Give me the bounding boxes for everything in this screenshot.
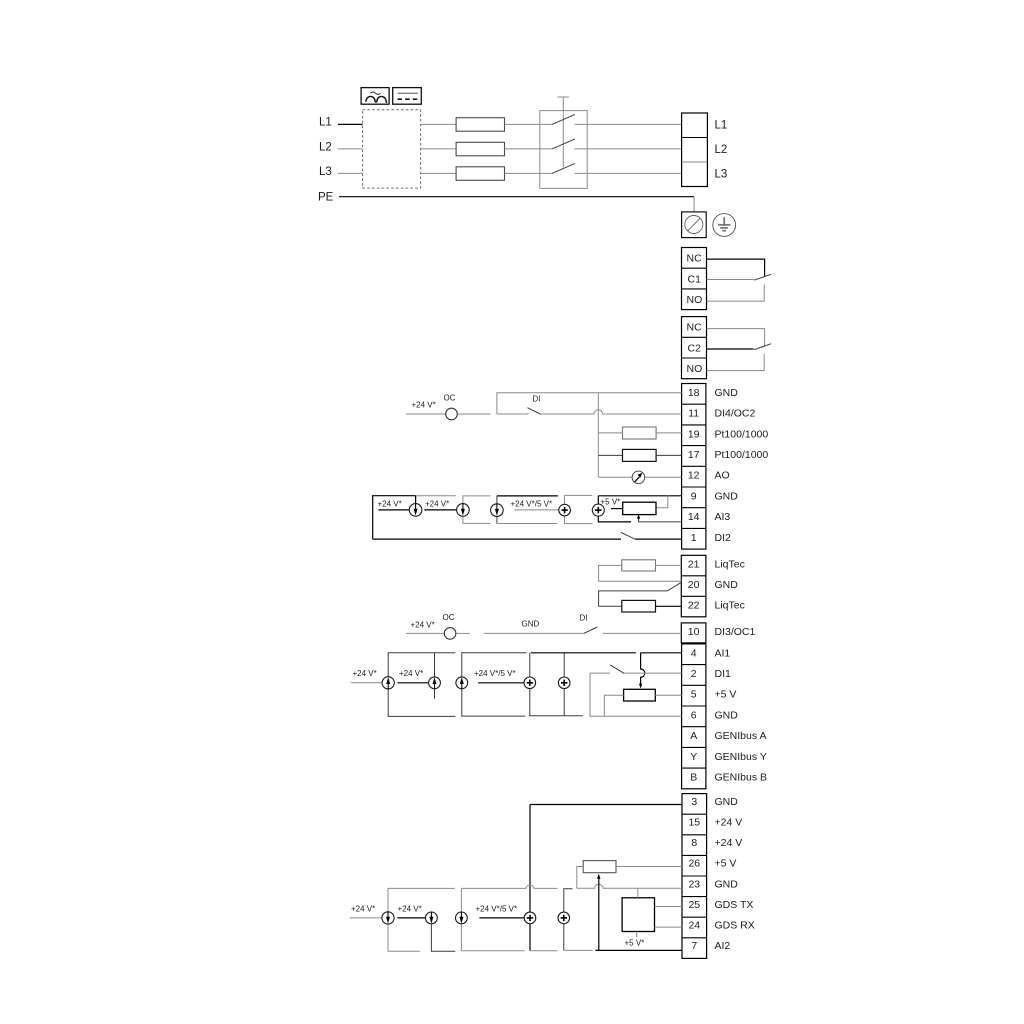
svg-text:L3: L3	[319, 166, 332, 178]
svg-text:11: 11	[688, 408, 699, 420]
svg-text:L1: L1	[715, 119, 728, 131]
svg-text:L1: L1	[319, 117, 332, 129]
svg-text:22: 22	[688, 600, 700, 612]
svg-text:17: 17	[688, 449, 700, 461]
svg-text:GND: GND	[715, 579, 739, 591]
svg-text:OC: OC	[444, 394, 456, 403]
svg-text:+24 V: +24 V	[715, 837, 743, 849]
svg-text:NC: NC	[687, 253, 703, 265]
svg-text:C1: C1	[688, 273, 702, 285]
svg-text:+24 V*/5 V*: +24 V*/5 V*	[511, 500, 553, 509]
svg-text:+5 V: +5 V	[715, 858, 737, 870]
svg-text:10: 10	[688, 626, 700, 638]
svg-text:A: A	[690, 730, 697, 742]
svg-text:GDS RX: GDS RX	[715, 920, 755, 932]
svg-text:GENIbus B: GENIbus B	[715, 772, 768, 784]
svg-text:LiqTec: LiqTec	[715, 559, 745, 571]
svg-text:9: 9	[691, 491, 697, 503]
svg-text:14: 14	[688, 511, 700, 523]
svg-text:8: 8	[691, 837, 697, 849]
svg-text:B: B	[690, 772, 697, 784]
svg-text:+24 V*: +24 V*	[425, 500, 449, 509]
svg-text:AI2: AI2	[715, 940, 731, 952]
svg-text:DI2: DI2	[715, 532, 732, 544]
svg-text:+5 V*: +5 V*	[625, 939, 645, 948]
svg-text:NO: NO	[687, 363, 703, 375]
svg-text:Pt100/1000: Pt100/1000	[715, 449, 769, 461]
svg-text:18: 18	[688, 387, 700, 399]
svg-text:21: 21	[688, 559, 700, 571]
svg-text:PE: PE	[318, 192, 334, 204]
svg-text:+24 V*: +24 V*	[353, 669, 377, 678]
svg-text:GND: GND	[715, 709, 739, 721]
svg-text:AI3: AI3	[715, 511, 731, 523]
svg-text:OC: OC	[443, 613, 455, 622]
svg-text:5: 5	[691, 689, 697, 701]
svg-text:15: 15	[688, 817, 700, 829]
svg-text:+24 V: +24 V	[715, 817, 743, 829]
svg-text:+5 V*: +5 V*	[601, 498, 621, 507]
svg-text:26: 26	[688, 858, 700, 870]
svg-text:+24 V*/5 V*: +24 V*/5 V*	[474, 669, 516, 678]
svg-text:C2: C2	[688, 342, 702, 354]
svg-text:AI1: AI1	[715, 647, 731, 659]
svg-text:AO: AO	[715, 470, 730, 482]
svg-text:6: 6	[691, 709, 697, 721]
svg-text:1: 1	[691, 532, 697, 544]
svg-text:GND: GND	[715, 491, 739, 503]
svg-text:24: 24	[688, 920, 700, 932]
svg-text:4: 4	[691, 647, 697, 659]
svg-text:L2: L2	[319, 141, 332, 153]
svg-text:+5 V: +5 V	[715, 689, 737, 701]
svg-text:L2: L2	[715, 144, 728, 156]
svg-text:GDS TX: GDS TX	[715, 899, 754, 911]
svg-text:NC: NC	[687, 322, 703, 334]
svg-text:Y: Y	[690, 751, 697, 763]
svg-text:DI: DI	[580, 614, 588, 623]
svg-text:+24 V*: +24 V*	[399, 669, 423, 678]
svg-text:2: 2	[691, 668, 697, 680]
svg-text:+24 V*: +24 V*	[412, 401, 436, 410]
svg-text:GND: GND	[715, 796, 739, 808]
svg-text:LiqTec: LiqTec	[715, 600, 745, 612]
svg-text:GND: GND	[715, 878, 739, 890]
svg-text:GND: GND	[522, 620, 540, 629]
svg-text:Pt100/1000: Pt100/1000	[715, 428, 769, 440]
svg-text:+24 V*: +24 V*	[351, 905, 375, 914]
svg-text:GENIbus Y: GENIbus Y	[715, 751, 767, 763]
svg-text:GND: GND	[715, 387, 739, 399]
svg-text:19: 19	[688, 428, 700, 440]
svg-text:25: 25	[688, 899, 700, 911]
svg-text:L3: L3	[715, 168, 728, 180]
svg-text:3: 3	[691, 796, 697, 808]
svg-text:GENIbus A: GENIbus A	[715, 730, 767, 742]
svg-text:+24 V*/5 V*: +24 V*/5 V*	[476, 905, 518, 914]
svg-text:23: 23	[688, 878, 700, 890]
svg-text:DI4/OC2: DI4/OC2	[715, 408, 756, 420]
svg-text:NO: NO	[687, 294, 703, 306]
svg-text:DI3/OC1: DI3/OC1	[715, 626, 756, 638]
svg-text:20: 20	[688, 579, 700, 591]
svg-text:DI1: DI1	[715, 668, 732, 680]
svg-text:DI: DI	[533, 395, 541, 404]
svg-text:12: 12	[688, 470, 700, 482]
svg-text:7: 7	[691, 940, 697, 952]
svg-text:+24 V*: +24 V*	[378, 500, 402, 509]
svg-text:+24 V*: +24 V*	[411, 621, 435, 630]
svg-text:+24 V*: +24 V*	[398, 905, 422, 914]
